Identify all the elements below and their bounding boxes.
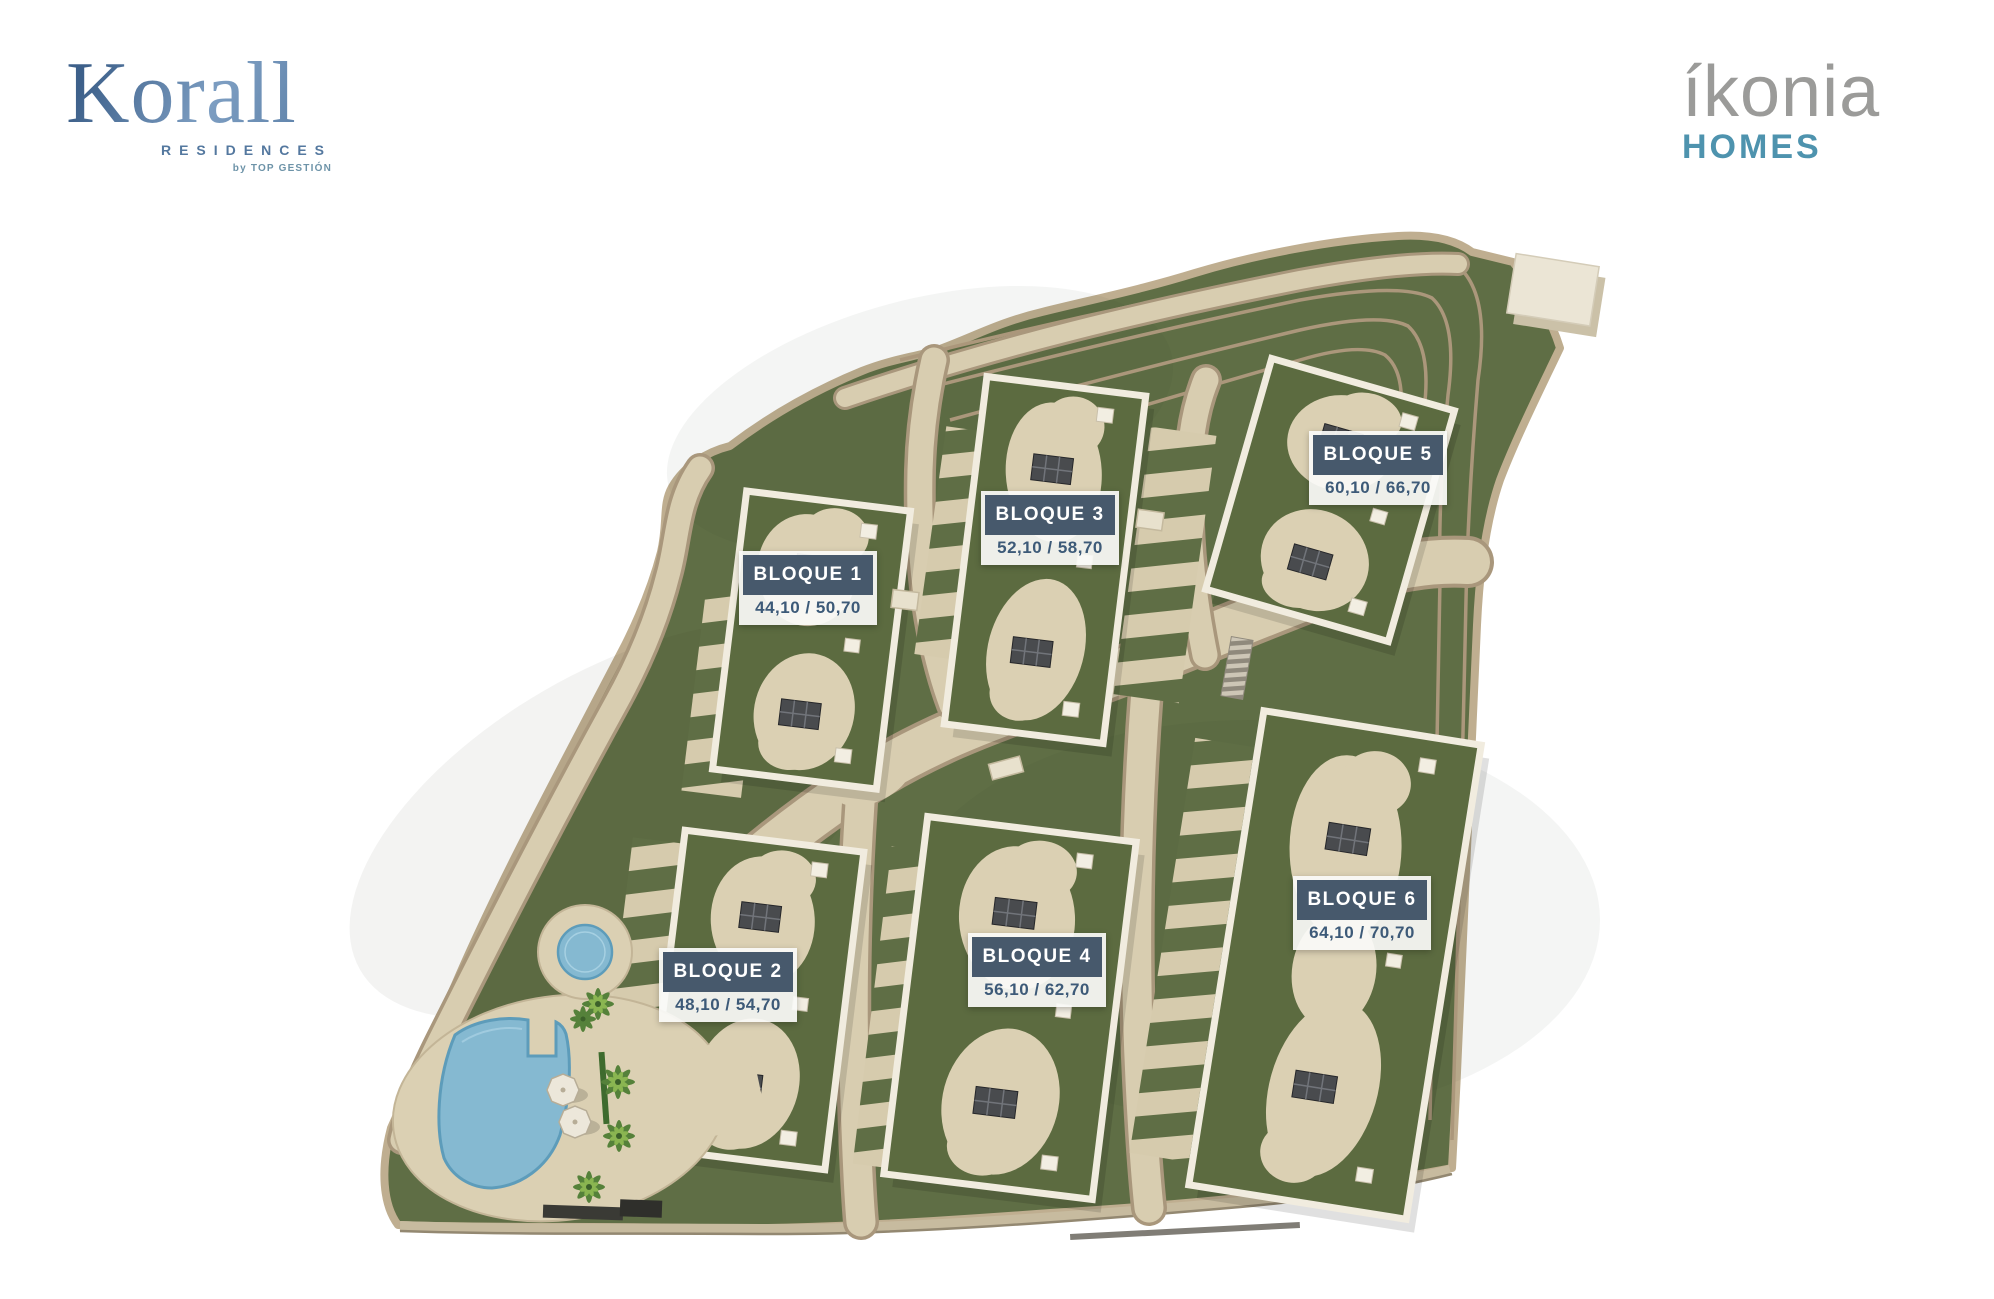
ikonia-homes-text: HOMES [1682, 128, 1942, 167]
site-plan-map [0, 0, 1994, 1294]
block-label-title: BLOQUE 4 [972, 937, 1102, 977]
block-label-area: 48,10 / 54,70 [663, 992, 793, 1018]
korall-wordmark: Korall [66, 50, 334, 138]
block-label-area: 44,10 / 50,70 [743, 595, 873, 621]
block-label-area: 64,10 / 70,70 [1297, 920, 1427, 946]
block-label-title: BLOQUE 6 [1297, 880, 1427, 920]
block-label-bloque-4[interactable]: BLOQUE 4 56,10 / 62,70 [968, 933, 1106, 1007]
building-bloque-4 [882, 817, 1146, 1213]
ikonia-wordmark: íkonia [1682, 58, 1942, 126]
storage-building [1505, 254, 1607, 338]
korall-byline: by TOP GESTIÓN [66, 163, 334, 174]
block-label-title: BLOQUE 2 [663, 952, 793, 992]
page: Korall RESIDENCES by TOP GESTIÓN íkonia … [0, 0, 1994, 1294]
block-label-bloque-2[interactable]: BLOQUE 2 48,10 / 54,70 [659, 948, 797, 1022]
building-bloque-1 [711, 491, 920, 802]
block-label-area: 56,10 / 62,70 [972, 977, 1102, 1003]
block-label-area: 60,10 / 66,70 [1313, 475, 1443, 501]
jacuzzi-pool [558, 925, 612, 979]
block-label-title: BLOQUE 1 [743, 555, 873, 595]
block-label-bloque-6[interactable]: BLOQUE 6 64,10 / 70,70 [1293, 876, 1431, 950]
block-label-bloque-3[interactable]: BLOQUE 3 52,10 / 58,70 [981, 491, 1119, 565]
block-label-area: 52,10 / 58,70 [985, 535, 1115, 561]
block-label-bloque-5[interactable]: BLOQUE 5 60,10 / 66,70 [1309, 431, 1447, 505]
korall-residences-text: RESIDENCES [66, 142, 334, 158]
block-label-bloque-1[interactable]: BLOQUE 1 44,10 / 50,70 [739, 551, 877, 625]
ikonia-logo: íkonia HOMES [1682, 58, 1942, 167]
block-label-title: BLOQUE 3 [985, 495, 1115, 535]
block-label-title: BLOQUE 5 [1313, 435, 1443, 475]
korall-logo: Korall RESIDENCES by TOP GESTIÓN [66, 50, 334, 174]
